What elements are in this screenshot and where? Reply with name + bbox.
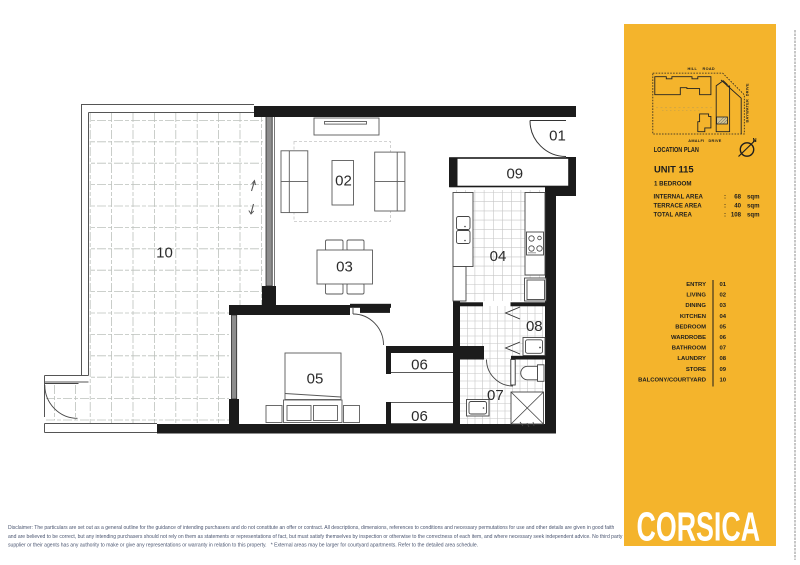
svg-text:ENTRY: ENTRY [686,282,706,288]
svg-text:05: 05 [720,324,727,330]
svg-text:09: 09 [720,367,727,373]
svg-text:supplier or their agents has a: supplier or their agents has any authori… [8,543,478,549]
svg-text:LAUNDRY: LAUNDRY [677,356,706,362]
svg-text:05: 05 [307,370,324,387]
svg-text:03: 03 [336,258,353,275]
svg-text:68: 68 [734,193,741,200]
svg-text:DINING: DINING [685,303,706,309]
svg-text:01: 01 [549,127,566,144]
svg-text:sqm: sqm [747,202,760,209]
svg-text:108: 108 [731,212,742,219]
svg-text:LIVING: LIVING [686,293,706,299]
svg-text:02: 02 [720,293,727,299]
svg-text:Disclaimer: The particulars ar: Disclaimer: The particulars are set out … [8,525,615,531]
svg-text:STORE: STORE [686,367,706,373]
svg-text:08: 08 [720,356,727,362]
svg-text:HILL ROAD: HILL ROAD [688,67,715,71]
svg-text:BAYWATER DRIVE: BAYWATER DRIVE [746,83,750,122]
svg-text:BEDROOM: BEDROOM [675,324,706,330]
svg-text:03: 03 [720,303,727,309]
svg-text:06: 06 [720,335,727,341]
svg-text:KITCHEN: KITCHEN [680,314,706,320]
svg-text:40: 40 [734,202,741,209]
svg-text:06: 06 [411,357,428,374]
svg-text:09: 09 [506,166,523,183]
svg-text:TERRACE AREA: TERRACE AREA [654,202,703,209]
svg-text:07: 07 [487,387,504,404]
svg-text:BATHROOM: BATHROOM [672,346,706,352]
svg-text:01: 01 [720,282,727,288]
svg-text:AMALFI DRIVE: AMALFI DRIVE [688,139,721,143]
svg-text:06: 06 [411,408,428,425]
svg-text:04: 04 [490,248,507,265]
svg-text:WARDROBE: WARDROBE [671,335,706,341]
svg-text:07: 07 [720,346,727,352]
svg-text:08: 08 [526,318,543,335]
svg-text::: : [724,212,726,219]
svg-text:BALCONY/COURTYARD: BALCONY/COURTYARD [638,377,706,383]
svg-text::: : [724,202,726,209]
svg-text:02: 02 [335,172,352,189]
svg-text:10: 10 [720,377,727,383]
svg-text:UNIT 115: UNIT 115 [654,164,694,175]
svg-text::: : [724,193,726,200]
svg-text:1 BEDROOM: 1 BEDROOM [654,181,691,188]
svg-text:CORSICA: CORSICA [637,505,761,550]
svg-text:LOCATION PLAN: LOCATION PLAN [654,146,699,154]
svg-text:sqm: sqm [747,193,760,200]
svg-text:10: 10 [156,245,173,262]
svg-text:04: 04 [720,314,727,320]
svg-text:TOTAL AREA: TOTAL AREA [654,212,693,219]
svg-text:and are believed to be correct: and are believed to be correct, but any … [8,534,623,540]
svg-text:INTERNAL AREA: INTERNAL AREA [654,193,704,200]
svg-text:sqm: sqm [747,212,760,219]
